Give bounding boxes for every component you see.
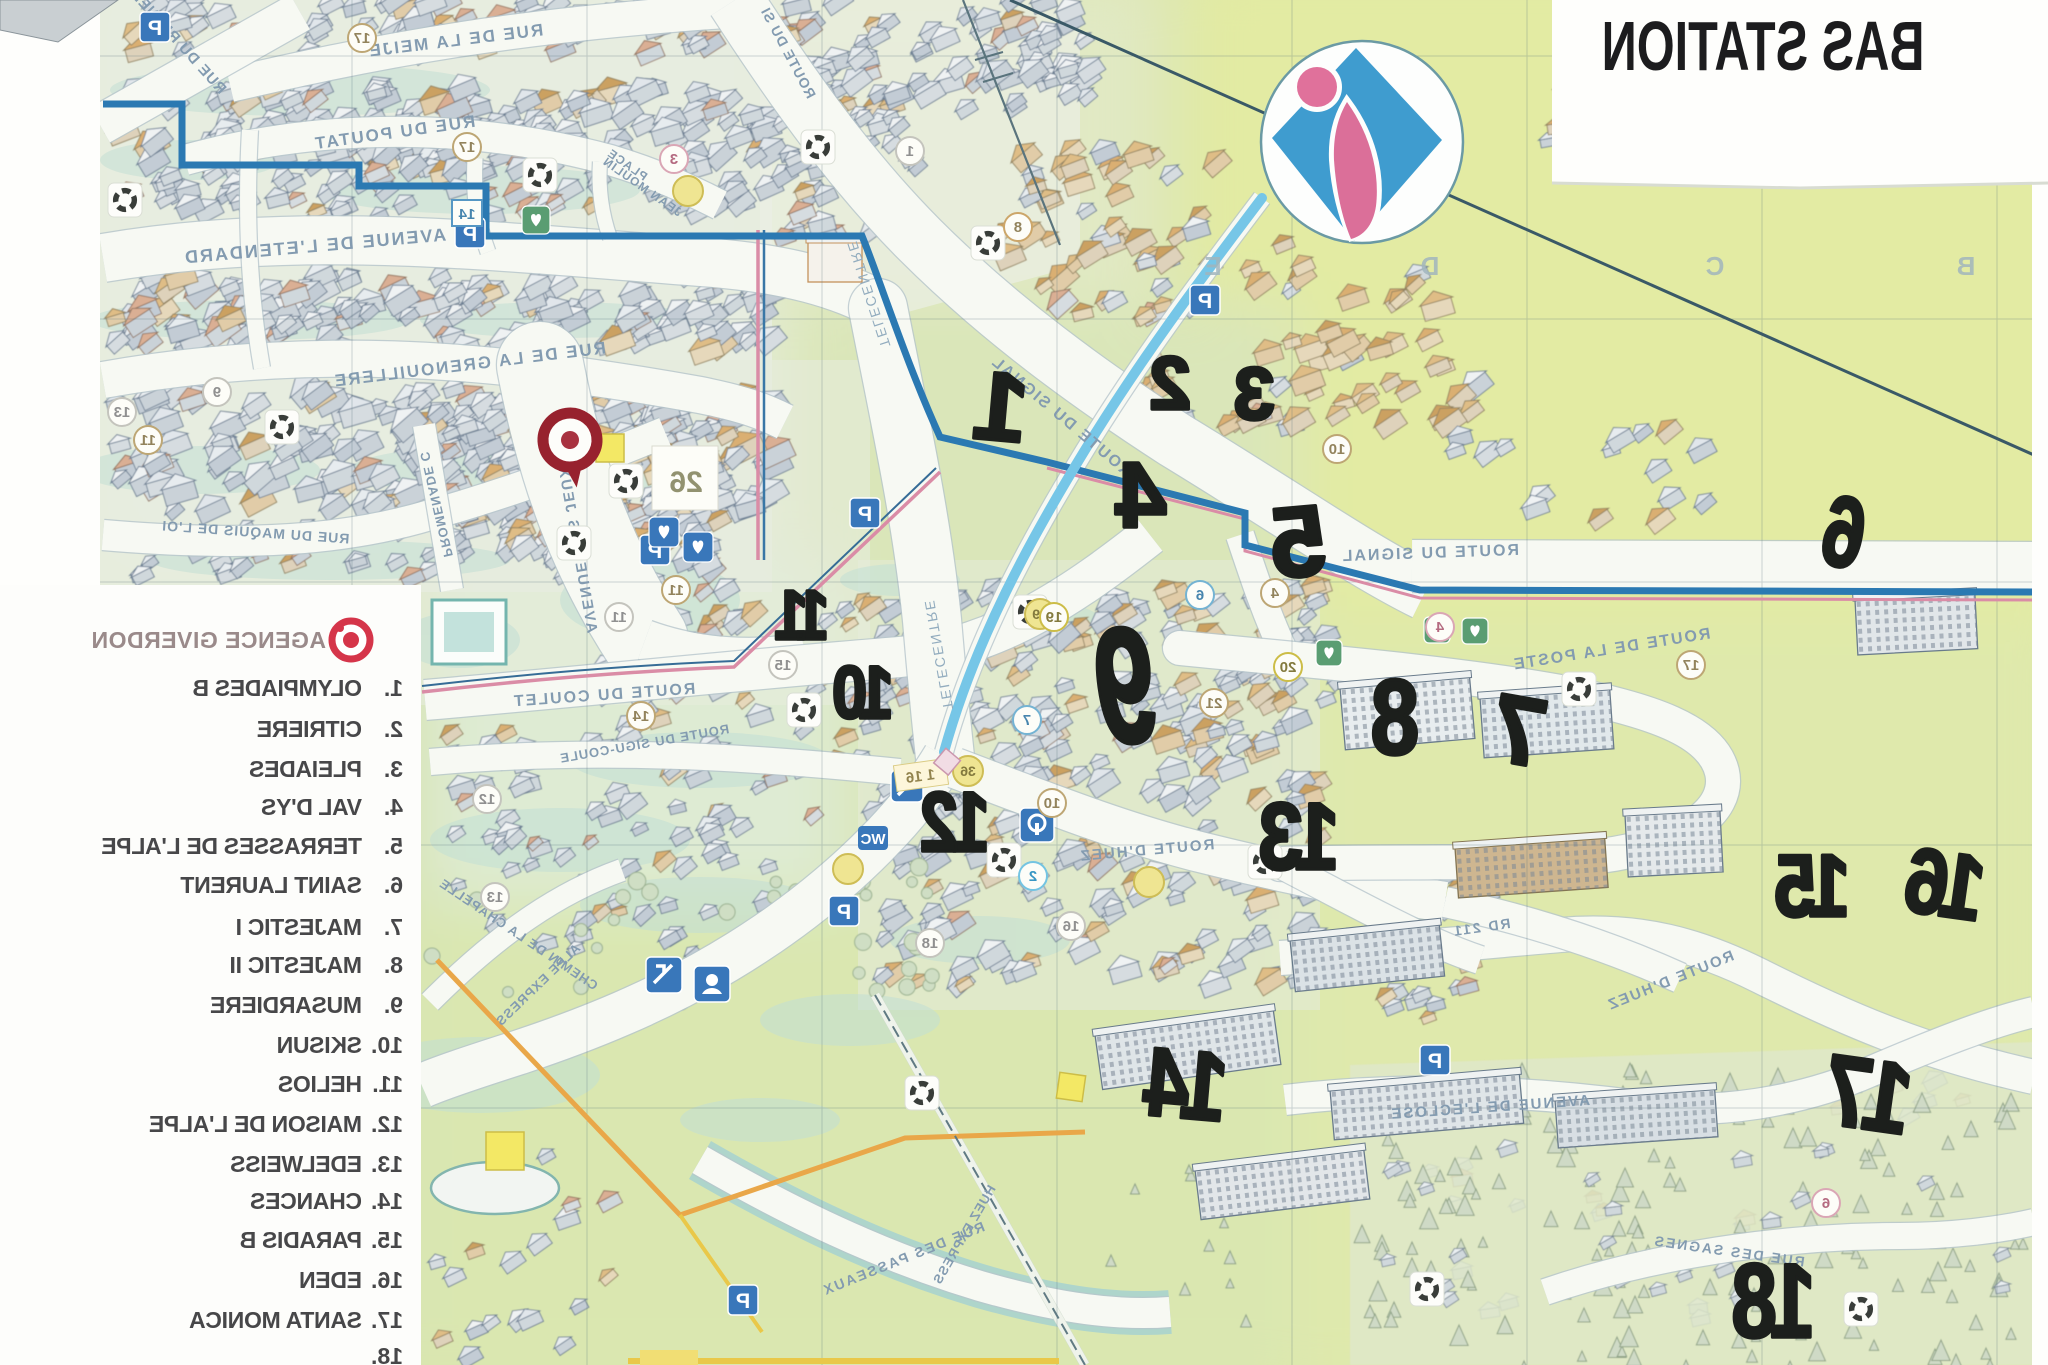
svg-text:1.: 1. bbox=[384, 675, 403, 701]
svg-text:2.: 2. bbox=[384, 716, 403, 742]
svg-text:13.: 13. bbox=[371, 1151, 403, 1177]
svg-text:VAL D'YS: VAL D'YS bbox=[261, 794, 362, 820]
svg-text:TERRASSES DE L'ALPE: TERRASSES DE L'ALPE bbox=[102, 833, 362, 859]
svg-text:8: 8 bbox=[1371, 657, 1420, 777]
svg-text:SKISUN: SKISUN bbox=[277, 1032, 362, 1058]
svg-text:12: 12 bbox=[922, 776, 990, 870]
svg-text:MAISON DE L'ALPE: MAISON DE L'ALPE bbox=[149, 1111, 362, 1137]
svg-text:BAS STATION: BAS STATION bbox=[1602, 7, 1925, 85]
svg-text:5.: 5. bbox=[384, 833, 403, 859]
svg-text:15: 15 bbox=[1776, 837, 1850, 935]
svg-text:3: 3 bbox=[1233, 352, 1274, 435]
svg-text:SANTA MONICA: SANTA MONICA bbox=[189, 1307, 362, 1333]
svg-text:CHANCES: CHANCES bbox=[250, 1188, 362, 1214]
svg-text:HELIOS: HELIOS bbox=[278, 1071, 362, 1097]
svg-text:MAJESTIC II: MAJESTIC II bbox=[230, 952, 362, 978]
svg-text:15.: 15. bbox=[371, 1227, 403, 1253]
svg-text:AGENCE GIVERDON: AGENCE GIVERDON bbox=[91, 627, 326, 653]
svg-text:CITRIERE: CITRIERE bbox=[257, 716, 362, 742]
svg-text:6.: 6. bbox=[384, 872, 403, 898]
svg-text:13: 13 bbox=[1261, 783, 1340, 890]
svg-text:3.: 3. bbox=[384, 756, 403, 782]
svg-text:10.: 10. bbox=[371, 1032, 403, 1058]
svg-text:OLYMPIADES B: OLYMPIADES B bbox=[193, 675, 362, 701]
svg-text:EDEN: EDEN bbox=[299, 1267, 362, 1293]
svg-text:17.: 17. bbox=[371, 1307, 403, 1333]
svg-text:11: 11 bbox=[776, 575, 829, 654]
svg-text:8.: 8. bbox=[384, 952, 403, 978]
svg-text:4: 4 bbox=[1115, 443, 1167, 547]
svg-text:9.: 9. bbox=[384, 992, 403, 1018]
svg-text:10: 10 bbox=[834, 651, 893, 734]
svg-text:18.: 18. bbox=[371, 1343, 403, 1365]
svg-text:2: 2 bbox=[1149, 341, 1191, 425]
svg-text:SAINT LAURENT: SAINT LAURENT bbox=[180, 872, 362, 898]
svg-text:1: 1 bbox=[969, 350, 1032, 463]
svg-text:16.: 16. bbox=[371, 1267, 403, 1293]
svg-text:18: 18 bbox=[1734, 1242, 1816, 1359]
svg-text:12.: 12. bbox=[371, 1111, 403, 1137]
svg-text:PLEIADES: PLEIADES bbox=[249, 756, 362, 782]
svg-text:5: 5 bbox=[1265, 484, 1330, 600]
svg-text:11.: 11. bbox=[372, 1071, 403, 1097]
svg-text:14.: 14. bbox=[371, 1188, 403, 1214]
svg-text:7.: 7. bbox=[384, 914, 403, 940]
svg-text:4.: 4. bbox=[384, 794, 403, 820]
svg-text:MAJESTIC I: MAJESTIC I bbox=[236, 914, 362, 940]
svg-text:PARADIS B: PARADIS B bbox=[240, 1227, 362, 1253]
svg-text:MUSARDIERE: MUSARDIERE bbox=[210, 992, 362, 1018]
svg-text:EDELWEISS: EDELWEISS bbox=[231, 1151, 363, 1177]
